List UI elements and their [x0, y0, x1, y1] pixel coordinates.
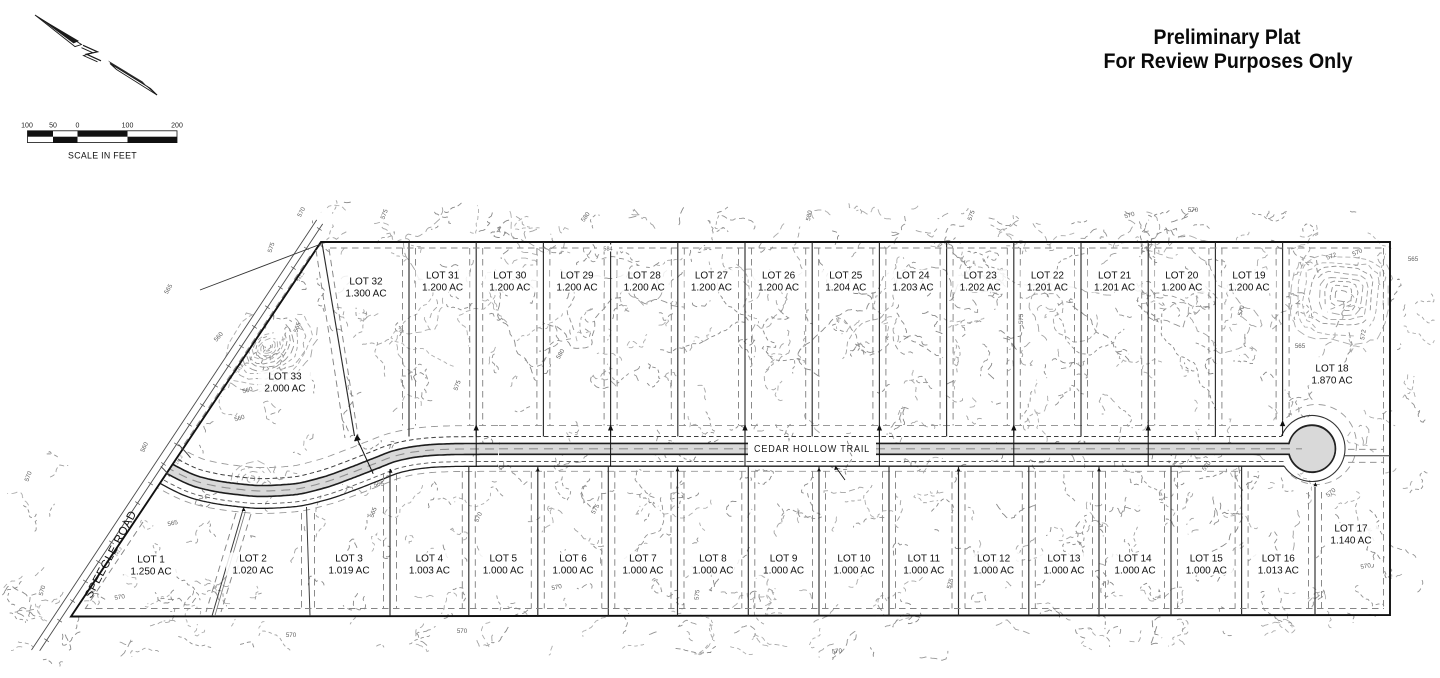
svg-text:1.204 AC: 1.204 AC [825, 283, 866, 294]
svg-text:1.200 AC: 1.200 AC [1228, 283, 1269, 294]
svg-text:1.019 AC: 1.019 AC [328, 566, 369, 577]
svg-text:2.000 AC: 2.000 AC [264, 384, 305, 395]
svg-text:LOT 31: LOT 31 [426, 271, 460, 282]
svg-text:SCALE IN FEET: SCALE IN FEET [68, 151, 137, 161]
svg-text:1.202 AC: 1.202 AC [960, 283, 1001, 294]
svg-text:LOT 22: LOT 22 [1031, 271, 1065, 282]
svg-text:LOT 23: LOT 23 [964, 271, 998, 282]
svg-text:570: 570 [831, 648, 842, 656]
svg-text:1.200 AC: 1.200 AC [489, 283, 530, 294]
svg-text:LOT 26: LOT 26 [762, 271, 796, 282]
svg-text:1.200 AC: 1.200 AC [422, 283, 463, 294]
svg-text:LOT 16: LOT 16 [1262, 554, 1296, 565]
svg-text:1.020 AC: 1.020 AC [232, 566, 273, 577]
svg-text:565: 565 [1408, 256, 1419, 263]
svg-text:565: 565 [1295, 343, 1306, 350]
svg-text:LOT 10: LOT 10 [837, 554, 871, 565]
svg-text:1.200 AC: 1.200 AC [758, 283, 799, 294]
svg-text:1.000 AC: 1.000 AC [833, 566, 874, 577]
svg-text:LOT 20: LOT 20 [1165, 271, 1199, 282]
svg-text:LOT 14: LOT 14 [1118, 554, 1152, 565]
svg-text:1.013 AC: 1.013 AC [1258, 566, 1299, 577]
svg-text:LOT 4: LOT 4 [416, 554, 444, 565]
svg-text:LOT 6: LOT 6 [559, 554, 587, 565]
svg-text:584: 584 [603, 247, 612, 253]
svg-text:575: 575 [1018, 313, 1025, 324]
svg-text:100: 100 [122, 123, 134, 130]
svg-text:LOT 19: LOT 19 [1232, 271, 1266, 282]
svg-text:LOT 33: LOT 33 [268, 372, 302, 383]
svg-text:1.203 AC: 1.203 AC [892, 283, 933, 294]
svg-text:570: 570 [1188, 207, 1199, 214]
svg-text:LOT 2: LOT 2 [239, 554, 267, 565]
svg-text:LOT 13: LOT 13 [1047, 554, 1081, 565]
svg-text:1.870 AC: 1.870 AC [1311, 376, 1352, 387]
svg-text:LOT 17: LOT 17 [1334, 524, 1368, 535]
svg-text:1.201 AC: 1.201 AC [1027, 283, 1068, 294]
svg-text:1.000 AC: 1.000 AC [1186, 566, 1227, 577]
svg-text:0: 0 [76, 123, 80, 130]
svg-text:1.000 AC: 1.000 AC [973, 566, 1014, 577]
svg-text:LOT 30: LOT 30 [493, 271, 527, 282]
svg-text:LOT 18: LOT 18 [1315, 364, 1349, 375]
svg-text:CEDAR HOLLOW TRAIL: CEDAR HOLLOW TRAIL [754, 444, 870, 455]
svg-text:200: 200 [171, 123, 183, 130]
svg-text:LOT 28: LOT 28 [628, 271, 662, 282]
svg-text:1.200 AC: 1.200 AC [691, 283, 732, 294]
svg-text:100: 100 [21, 123, 33, 130]
svg-text:LOT 7: LOT 7 [629, 554, 657, 565]
svg-text:LOT 8: LOT 8 [699, 554, 727, 565]
svg-text:LOT 3: LOT 3 [335, 554, 363, 565]
svg-text:575: 575 [694, 589, 702, 600]
svg-text:1.000 AC: 1.000 AC [692, 566, 733, 577]
svg-text:LOT 11: LOT 11 [908, 554, 941, 565]
svg-text:LOT 24: LOT 24 [896, 271, 930, 282]
svg-text:1.250 AC: 1.250 AC [130, 567, 171, 578]
svg-text:1.300 AC: 1.300 AC [345, 289, 386, 300]
svg-text:1.000 AC: 1.000 AC [1043, 566, 1084, 577]
svg-text:1.000 AC: 1.000 AC [552, 566, 593, 577]
svg-text:1.003 AC: 1.003 AC [409, 566, 450, 577]
svg-text:1.000 AC: 1.000 AC [903, 566, 944, 577]
svg-text:1.000 AC: 1.000 AC [1114, 566, 1155, 577]
svg-text:1.000 AC: 1.000 AC [483, 566, 524, 577]
svg-text:LOT 1: LOT 1 [137, 555, 165, 566]
svg-text:For Review Purposes Only: For Review Purposes Only [1104, 49, 1353, 73]
svg-text:570: 570 [457, 628, 468, 635]
svg-text:1.000 AC: 1.000 AC [622, 566, 663, 577]
svg-text:LOT 21: LOT 21 [1098, 271, 1132, 282]
svg-text:570: 570 [286, 632, 297, 639]
svg-text:50: 50 [49, 123, 57, 130]
svg-text:1.140 AC: 1.140 AC [1330, 536, 1371, 547]
svg-text:LOT 15: LOT 15 [1190, 554, 1224, 565]
svg-text:LOT 12: LOT 12 [977, 554, 1011, 565]
svg-text:1.201 AC: 1.201 AC [1094, 283, 1135, 294]
svg-text:1.200 AC: 1.200 AC [624, 283, 665, 294]
svg-text:1.000 AC: 1.000 AC [763, 566, 804, 577]
svg-text:Preliminary Plat: Preliminary Plat [1154, 25, 1301, 49]
svg-text:LOT 9: LOT 9 [770, 554, 798, 565]
svg-text:LOT 32: LOT 32 [349, 277, 383, 288]
svg-text:1.200 AC: 1.200 AC [1161, 283, 1202, 294]
svg-text:LOT 27: LOT 27 [695, 271, 729, 282]
svg-text:LOT 5: LOT 5 [489, 554, 517, 565]
svg-text:LOT 25: LOT 25 [829, 271, 863, 282]
svg-text:1.200 AC: 1.200 AC [556, 283, 597, 294]
svg-text:LOT 29: LOT 29 [560, 271, 594, 282]
